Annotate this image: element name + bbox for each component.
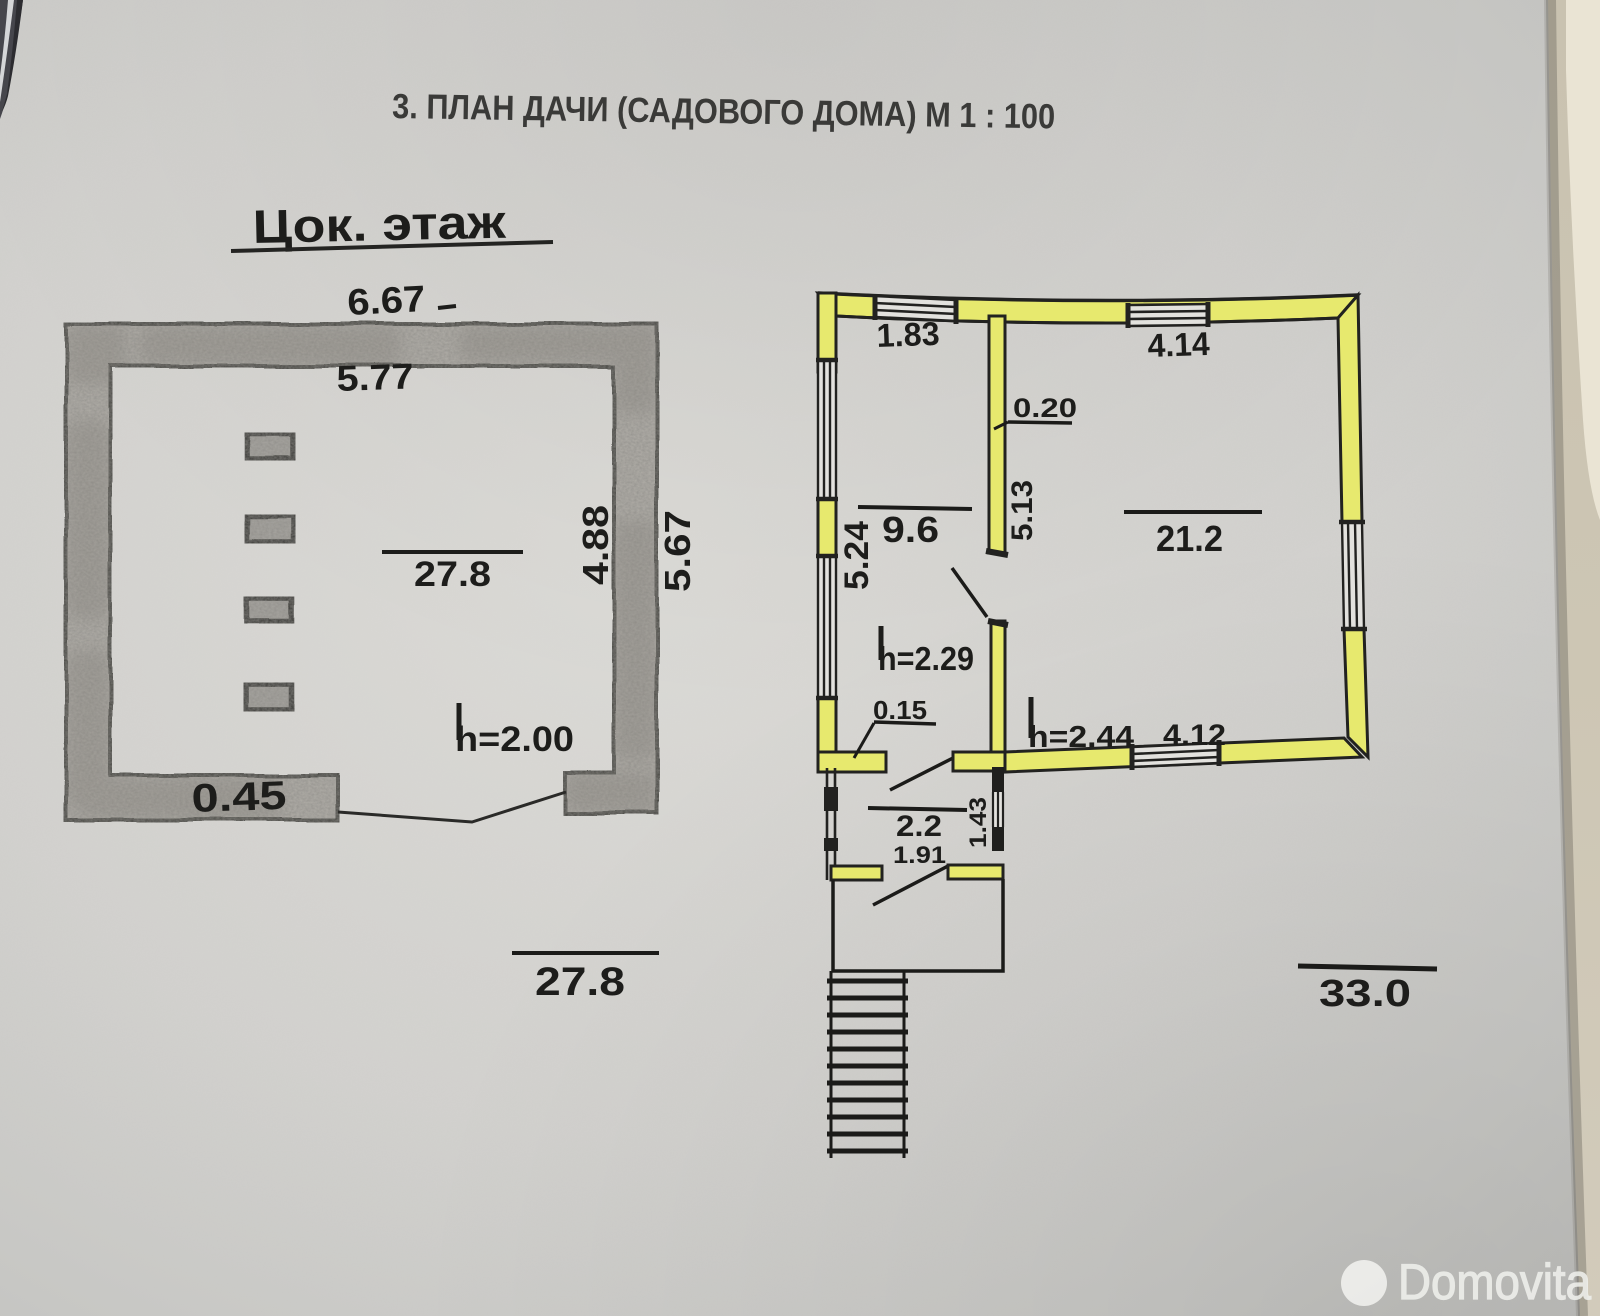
svg-text:1.91: 1.91 bbox=[893, 842, 946, 869]
svg-text:Domovita: Domovita bbox=[1398, 1254, 1591, 1310]
svg-text:h=2.44: h=2.44 bbox=[1028, 719, 1135, 754]
svg-text:5.13: 5.13 bbox=[1006, 480, 1039, 541]
svg-text:1.43: 1.43 bbox=[965, 797, 992, 848]
svg-text:5.77: 5.77 bbox=[336, 355, 414, 399]
svg-text:27.8: 27.8 bbox=[414, 555, 491, 594]
svg-text:21.2: 21.2 bbox=[1156, 518, 1223, 559]
svg-text:6.67: 6.67 bbox=[346, 278, 426, 323]
svg-text:27.8: 27.8 bbox=[535, 960, 625, 1004]
svg-text:0.45: 0.45 bbox=[191, 774, 287, 821]
svg-text:h=2.29: h=2.29 bbox=[878, 640, 974, 677]
svg-text:1.83: 1.83 bbox=[876, 315, 940, 354]
svg-text:2.2: 2.2 bbox=[896, 810, 942, 843]
svg-text:5.24: 5.24 bbox=[838, 521, 876, 590]
svg-text:h=2.00: h=2.00 bbox=[455, 720, 574, 759]
svg-text:4.88: 4.88 bbox=[575, 505, 616, 585]
svg-text:4.12: 4.12 bbox=[1163, 719, 1226, 752]
svg-text:5.67: 5.67 bbox=[657, 510, 698, 592]
svg-text:33.0: 33.0 bbox=[1319, 973, 1411, 1015]
svg-text:0.20: 0.20 bbox=[1013, 393, 1077, 423]
svg-text:4.14: 4.14 bbox=[1147, 325, 1211, 364]
svg-text:9.6: 9.6 bbox=[882, 509, 939, 550]
